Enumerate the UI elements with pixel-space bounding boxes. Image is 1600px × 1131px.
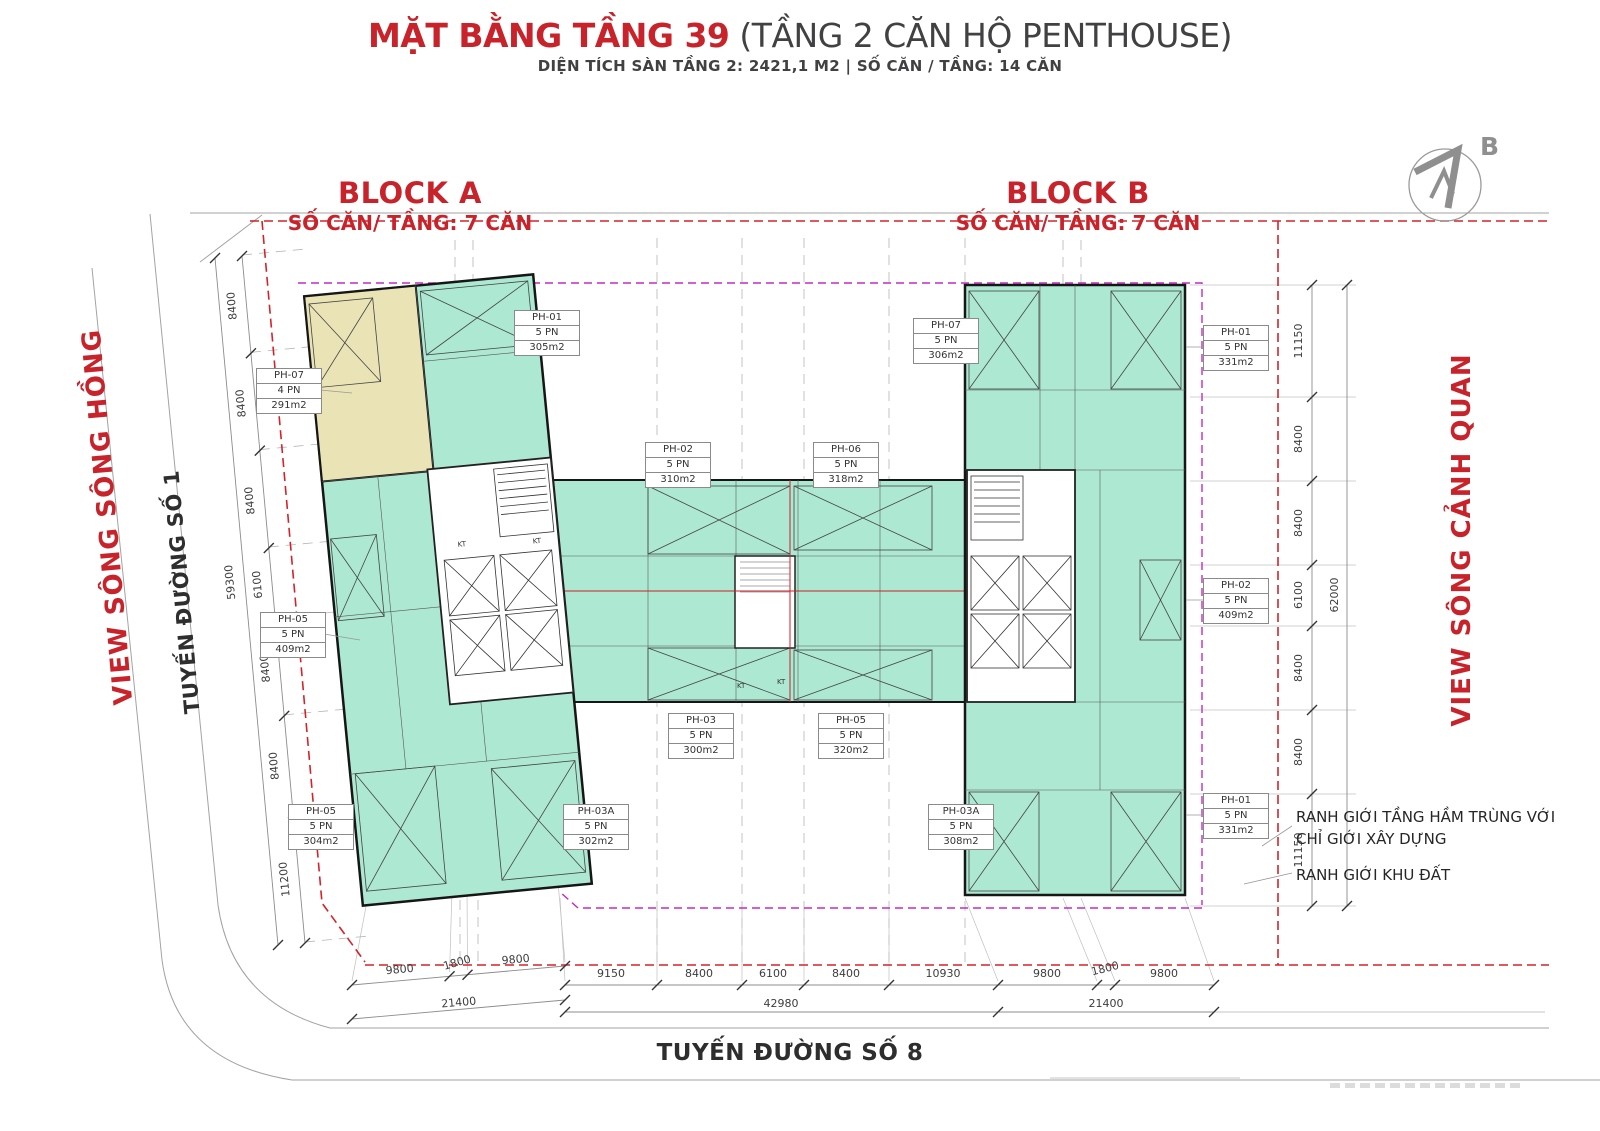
title-subtitle: DIỆN TÍCH SÀN TẦNG 2: 2421,1 M2 | SỐ CĂN… bbox=[0, 57, 1600, 75]
unit-label-ph07-a: PH-074 PN291m2 bbox=[256, 368, 322, 414]
block-a-units: SỐ CĂN/ TẦNG: 7 CĂN bbox=[280, 211, 540, 235]
unit-ph07-beige bbox=[304, 286, 433, 482]
unit-label-ph05-a-mid: PH-055 PN409m2 bbox=[260, 612, 326, 658]
block-b-core bbox=[967, 470, 1075, 702]
boundary-notes: RANH GIỚI TẦNG HẦM TRÙNG VỚI CHỈ GIỚI XÂ… bbox=[1296, 806, 1581, 886]
compass-icon: B bbox=[1409, 132, 1499, 221]
dim-value: 8400 bbox=[266, 751, 282, 780]
dim-value: 6100 bbox=[250, 570, 266, 599]
connector-wing: KT KT bbox=[552, 480, 965, 702]
dim-value: 9150 bbox=[597, 967, 625, 980]
block-b-name: BLOCK B bbox=[948, 176, 1208, 210]
unit-label-ph05-a-bottom: PH-055 PN304m2 bbox=[288, 804, 354, 850]
unit-label-ph07-b: PH-075 PN306m2 bbox=[913, 318, 979, 364]
unit-label-ph02-a: PH-025 PN310m2 bbox=[645, 442, 711, 488]
page-title: MẶT BẰNG TẦNG 39 (TẦNG 2 CĂN HỘ PENTHOUS… bbox=[0, 16, 1600, 75]
dim-total: 42980 bbox=[764, 997, 799, 1010]
note-basement-boundary: RANH GIỚI TẦNG HẦM TRÙNG VỚI CHỈ GIỚI XÂ… bbox=[1296, 806, 1581, 850]
compass-north-label: B bbox=[1480, 132, 1499, 161]
shaft-label: KT bbox=[532, 537, 542, 546]
floorplan-drawing: KT KT KT bbox=[0, 0, 1600, 1131]
block-a-name: BLOCK A bbox=[280, 176, 540, 210]
dim-value: 8400 bbox=[1292, 654, 1305, 682]
bridge-stair-core bbox=[735, 556, 795, 648]
bottom-road-label: TUYẾN ĐƯỜNG SỐ 8 bbox=[600, 1040, 980, 1066]
shaft-label: KT bbox=[457, 540, 467, 549]
dim-value: 9800 bbox=[1150, 967, 1178, 980]
dim-value: 11200 bbox=[276, 861, 292, 897]
dim-value: 6100 bbox=[1292, 581, 1305, 609]
unit-label-ph02-b: PH-025 PN409m2 bbox=[1203, 578, 1269, 624]
block-a-core bbox=[427, 458, 573, 705]
dim-value: 6100 bbox=[759, 967, 787, 980]
dim-total: 62000 bbox=[1328, 578, 1341, 613]
note-land-boundary: RANH GIỚI KHU ĐẤT bbox=[1296, 864, 1581, 886]
dim-value: 8400 bbox=[242, 486, 258, 515]
unit-label-ph03a-b: PH-03A5 PN308m2 bbox=[928, 804, 994, 850]
faint-cropped-text bbox=[1330, 1083, 1520, 1088]
unit-label-ph05-b: PH-055 PN320m2 bbox=[818, 713, 884, 759]
dim-value: 10930 bbox=[926, 967, 961, 980]
title-main: MẶT BẰNG TẦNG 39 bbox=[368, 16, 729, 55]
dim-value: 9800 bbox=[1033, 967, 1061, 980]
dim-value: 8400 bbox=[1292, 738, 1305, 766]
block-a-label: BLOCK A SỐ CĂN/ TẦNG: 7 CĂN bbox=[280, 176, 540, 235]
unit-label-ph01-b-top: PH-015 PN331m2 bbox=[1203, 325, 1269, 371]
unit-label-ph01-b-bottom: PH-015 PN331m2 bbox=[1203, 793, 1269, 839]
dim-value: 8400 bbox=[832, 967, 860, 980]
shaft-label: KT bbox=[737, 682, 746, 690]
dim-value: 8400 bbox=[1292, 425, 1305, 453]
dim-value: 8400 bbox=[233, 389, 249, 418]
right-view-label: VIEW SÔNG CẢNH QUAN bbox=[1447, 330, 1477, 750]
unit-label-ph03-a: PH-035 PN300m2 bbox=[668, 713, 734, 759]
dim-value: 8400 bbox=[1292, 509, 1305, 537]
dim-value: 11150 bbox=[1292, 324, 1305, 359]
dimension-chain-bottom: 9800 1800 9800 21400 9150 8400 6100 8400… bbox=[347, 952, 1545, 1024]
shaft-label: KT bbox=[777, 678, 786, 686]
block-b-label: BLOCK B SỐ CĂN/ TẦNG: 7 CĂN bbox=[948, 176, 1208, 235]
dim-value: 9800 bbox=[501, 952, 530, 967]
unit-label-ph01-a: PH-015 PN305m2 bbox=[514, 310, 580, 356]
block-b-units: SỐ CĂN/ TẦNG: 7 CĂN bbox=[948, 211, 1208, 235]
dim-total: 21400 bbox=[1089, 997, 1124, 1010]
unit-label-ph06-b: PH-065 PN318m2 bbox=[813, 442, 879, 488]
block-b-plan bbox=[965, 285, 1185, 895]
floorplan-page: KT KT KT bbox=[0, 0, 1600, 1131]
dim-value: 8400 bbox=[257, 654, 273, 683]
dim-value: 1800 bbox=[1090, 959, 1120, 978]
title-sub: (TẦNG 2 CĂN HỘ PENTHOUSE) bbox=[739, 16, 1232, 55]
dim-total: 59300 bbox=[222, 564, 238, 600]
dim-value: 8400 bbox=[224, 291, 240, 320]
dim-value: 9800 bbox=[385, 962, 414, 977]
dim-value: 8400 bbox=[685, 967, 713, 980]
unit-label-ph03a-a: PH-03A5 PN302m2 bbox=[563, 804, 629, 850]
